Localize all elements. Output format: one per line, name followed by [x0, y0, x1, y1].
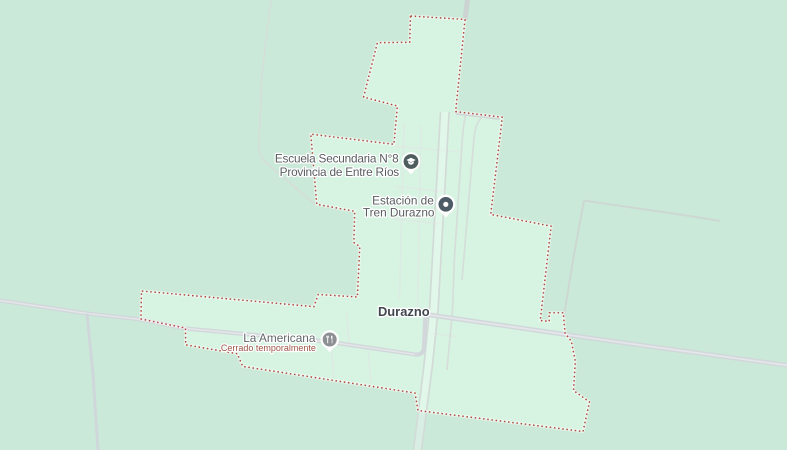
- svg-text:Provincia de Entre Ríos: Provincia de Entre Ríos: [280, 165, 400, 179]
- svg-text:Durazno: Durazno: [378, 304, 430, 319]
- svg-text:Cerrado temporalmente: Cerrado temporalmente: [221, 343, 316, 353]
- svg-text:Tren Durazno: Tren Durazno: [363, 206, 435, 220]
- svg-text:Escuela Secundaria N°8: Escuela Secundaria N°8: [275, 152, 399, 166]
